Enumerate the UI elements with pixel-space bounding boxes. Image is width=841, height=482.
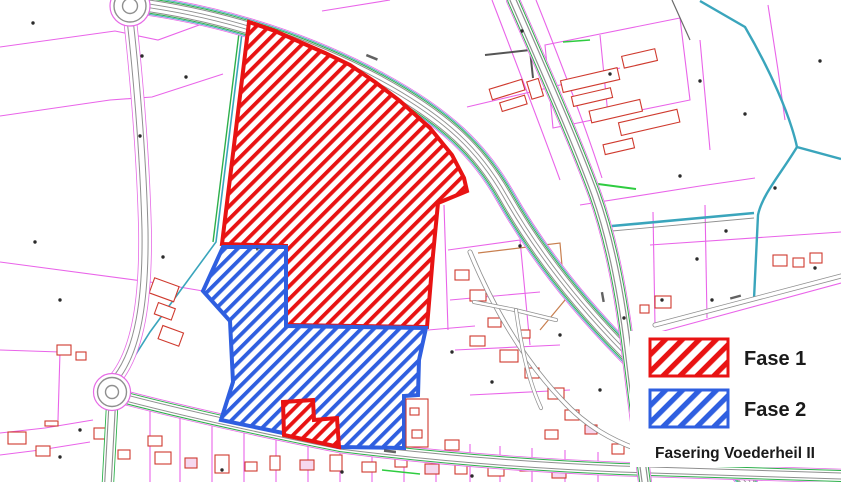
roundabout-south xyxy=(94,374,131,411)
parcel-at-fase2-east-edge xyxy=(406,399,428,447)
map-screenshot: Fase 1 Fase 2 Fasering Voederheil II xyxy=(0,0,841,482)
legend-caption: Fasering Voederheil II xyxy=(655,445,815,462)
legend-box: Fase 1 Fase 2 Fasering Voederheil II xyxy=(630,331,841,467)
legend-label-fase1: Fase 1 xyxy=(744,348,806,370)
legend-swatch-fase2 xyxy=(650,390,728,427)
map-canvas: Fase 1 Fase 2 Fasering Voederheil II xyxy=(0,0,841,482)
legend-label-fase2: Fase 2 xyxy=(744,399,806,421)
legend-swatch-fase1 xyxy=(650,339,728,376)
